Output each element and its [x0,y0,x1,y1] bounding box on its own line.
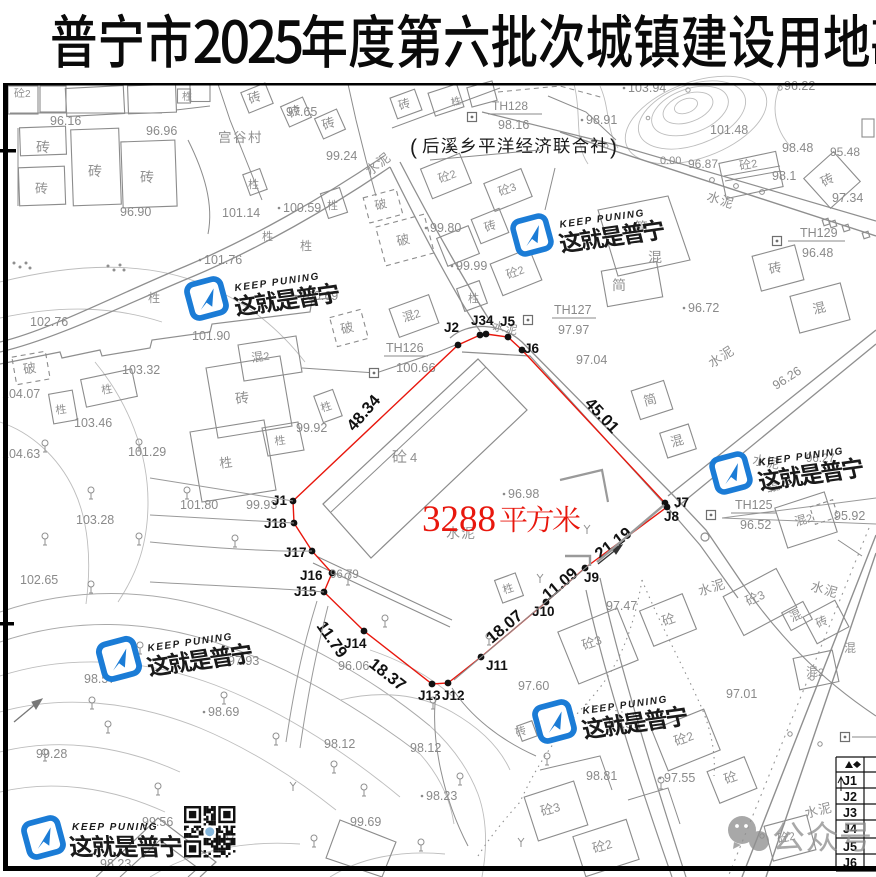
svg-text:101.90: 101.90 [192,329,230,343]
svg-text:J8: J8 [664,509,680,524]
svg-text:98.16: 98.16 [498,118,529,132]
svg-text:98.81: 98.81 [586,769,617,783]
svg-text:J2: J2 [843,790,857,804]
svg-text:103.28: 103.28 [76,513,114,527]
svg-text:99.24: 99.24 [326,149,357,163]
svg-text:103.32: 103.32 [122,363,160,377]
svg-text:102.65: 102.65 [20,573,58,587]
svg-text:J6: J6 [524,341,540,356]
svg-text:97.34: 97.34 [832,191,863,205]
svg-text:101.14: 101.14 [222,206,260,220]
svg-text:栍: 栍 [262,229,273,243]
svg-text:J18: J18 [264,516,287,531]
svg-text:96.16: 96.16 [50,114,81,128]
svg-text:): ) [610,136,617,159]
svg-text:TH128: TH128 [492,99,528,113]
svg-text:99.69: 99.69 [350,815,381,829]
svg-text:栍: 栍 [54,402,67,417]
svg-text:栍: 栍 [300,238,312,253]
svg-text:栍: 栍 [327,198,338,212]
svg-text:96.87: 96.87 [688,157,718,171]
svg-text:3288: 3288 [422,499,496,540]
svg-text:TH127: TH127 [554,303,592,317]
svg-text:栍: 栍 [218,454,233,471]
svg-text:TH129: TH129 [800,226,838,240]
svg-text:栍: 栍 [248,177,259,191]
svg-text:J2: J2 [444,320,459,335]
svg-text:96.90: 96.90 [120,205,151,219]
svg-text:99.80: 99.80 [430,221,461,235]
svg-text:0.00: 0.00 [660,155,681,167]
svg-text:98.12: 98.12 [324,737,355,751]
svg-text:97.60: 97.60 [518,679,549,693]
svg-text:TH126: TH126 [386,341,424,355]
svg-text:KEEP PUNING: KEEP PUNING [72,822,158,833]
svg-text:98.91: 98.91 [586,113,617,127]
svg-text:96.72: 96.72 [688,301,719,315]
svg-text:102.76: 102.76 [30,315,68,329]
svg-text:98.48: 98.48 [782,141,813,155]
svg-text:101.29: 101.29 [128,445,166,459]
svg-text:2: 2 [25,89,31,100]
svg-text:96.98: 96.98 [508,487,539,501]
svg-text:99.28: 99.28 [36,747,67,761]
svg-text:95.48: 95.48 [830,145,860,159]
svg-text:栍: 栍 [148,290,160,305]
svg-text:101.80: 101.80 [180,498,218,512]
svg-text:103.46: 103.46 [74,416,112,430]
svg-text:101.48: 101.48 [710,123,748,137]
svg-text:栍: 栍 [273,433,286,448]
svg-text:96.48: 96.48 [802,246,833,260]
svg-text:95.92: 95.92 [834,509,865,523]
svg-text:栍: 栍 [182,90,192,103]
svg-text:96.22: 96.22 [784,79,815,93]
svg-text:99.92: 99.92 [296,421,327,435]
svg-text:J5: J5 [500,314,516,329]
svg-text:J3: J3 [843,806,857,820]
svg-text:2: 2 [818,667,824,679]
svg-text:96.52: 96.52 [740,518,771,532]
svg-text:J17: J17 [284,545,307,560]
svg-text:101.76: 101.76 [204,253,242,267]
svg-text:96.06: 96.06 [338,659,369,673]
svg-text:97.04: 97.04 [576,353,607,367]
svg-text:97.65: 97.65 [286,105,317,119]
svg-text:98.1: 98.1 [772,169,796,183]
svg-text:J9: J9 [584,570,599,585]
svg-text:100.59: 100.59 [283,201,321,215]
svg-text:96.79: 96.79 [330,569,359,581]
svg-text:98.12: 98.12 [410,741,441,755]
svg-text:98.23: 98.23 [426,789,457,803]
svg-text:98.69: 98.69 [208,705,239,719]
svg-text:J1: J1 [272,493,288,508]
svg-text:97.55: 97.55 [664,771,695,785]
svg-text:J34: J34 [471,313,494,328]
svg-text:J1: J1 [843,774,857,788]
svg-text:100.66: 100.66 [396,360,436,375]
svg-text:(: ( [410,136,417,159]
svg-text:TH125: TH125 [735,498,773,512]
svg-text:J16: J16 [300,568,323,583]
svg-text:J7: J7 [674,495,689,510]
svg-text:J13: J13 [418,688,441,703]
svg-text:99.99: 99.99 [456,259,487,273]
svg-text:J11: J11 [486,658,508,673]
svg-text:96.96: 96.96 [146,124,177,138]
svg-text:97.01: 97.01 [726,687,757,701]
svg-text:栍: 栍 [468,291,479,305]
svg-text:4: 4 [410,450,417,465]
svg-text:97.97: 97.97 [558,323,589,337]
